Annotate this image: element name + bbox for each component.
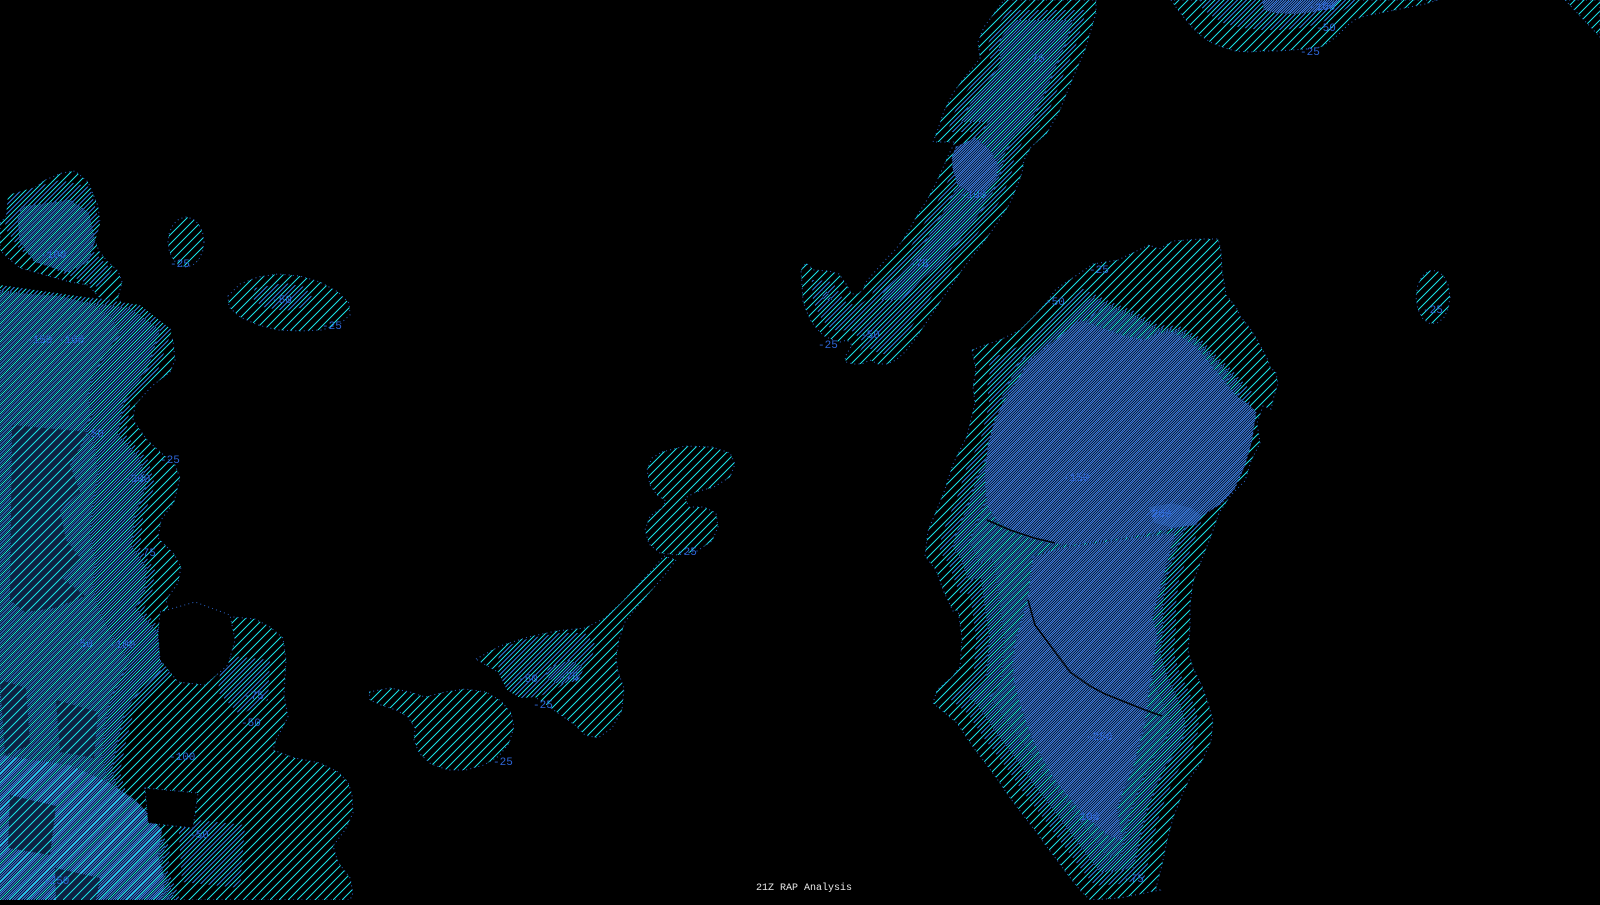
svg-text:-25: -25 [1300, 47, 1320, 59]
svg-text:-25: -25 [322, 321, 342, 333]
svg-text:-50: -50 [84, 429, 104, 441]
svg-text:-100: -100 [1309, 2, 1335, 14]
svg-text:-100: -100 [40, 250, 66, 262]
svg-text:-50: -50 [518, 674, 538, 686]
svg-text:-25: -25 [160, 455, 180, 467]
svg-text:-50: -50 [1045, 297, 1065, 309]
svg-text:21Z RAP Analysis: 21Z RAP Analysis [756, 882, 852, 894]
svg-text:-25: -25 [1089, 265, 1109, 277]
svg-text:-75: -75 [1025, 54, 1045, 66]
svg-text:-100: -100 [1073, 812, 1099, 824]
svg-text:-75: -75 [559, 672, 579, 684]
svg-text:-200: -200 [1145, 509, 1171, 521]
svg-text:-100: -100 [109, 640, 135, 652]
svg-text:-150: -150 [26, 335, 52, 347]
svg-text:-50: -50 [189, 830, 209, 842]
svg-text:-25: -25 [493, 757, 513, 769]
svg-text:-25: -25 [818, 340, 838, 352]
svg-text:-100: -100 [169, 752, 195, 764]
svg-text:-50: -50 [241, 718, 261, 730]
svg-text:-25: -25 [170, 259, 190, 271]
svg-text:-150: -150 [1063, 473, 1089, 485]
svg-text:-75: -75 [136, 548, 156, 560]
svg-text:-25: -25 [1423, 305, 1443, 317]
svg-text:-50: -50 [272, 295, 292, 307]
svg-text:-25: -25 [533, 700, 553, 712]
svg-text:-75: -75 [244, 691, 264, 703]
svg-text:-75: -75 [909, 259, 929, 271]
svg-text:-250: -250 [1086, 732, 1112, 744]
svg-text:-100: -100 [58, 335, 84, 347]
svg-text:-25: -25 [677, 547, 697, 559]
svg-text:-300: -300 [124, 474, 150, 486]
svg-text:-50: -50 [860, 330, 880, 342]
svg-text:-250: -250 [43, 876, 69, 888]
svg-text:-75: -75 [1124, 874, 1144, 886]
svg-text:-100: -100 [960, 190, 986, 202]
svg-text:-50: -50 [1316, 23, 1336, 35]
svg-text:-50: -50 [73, 639, 93, 651]
